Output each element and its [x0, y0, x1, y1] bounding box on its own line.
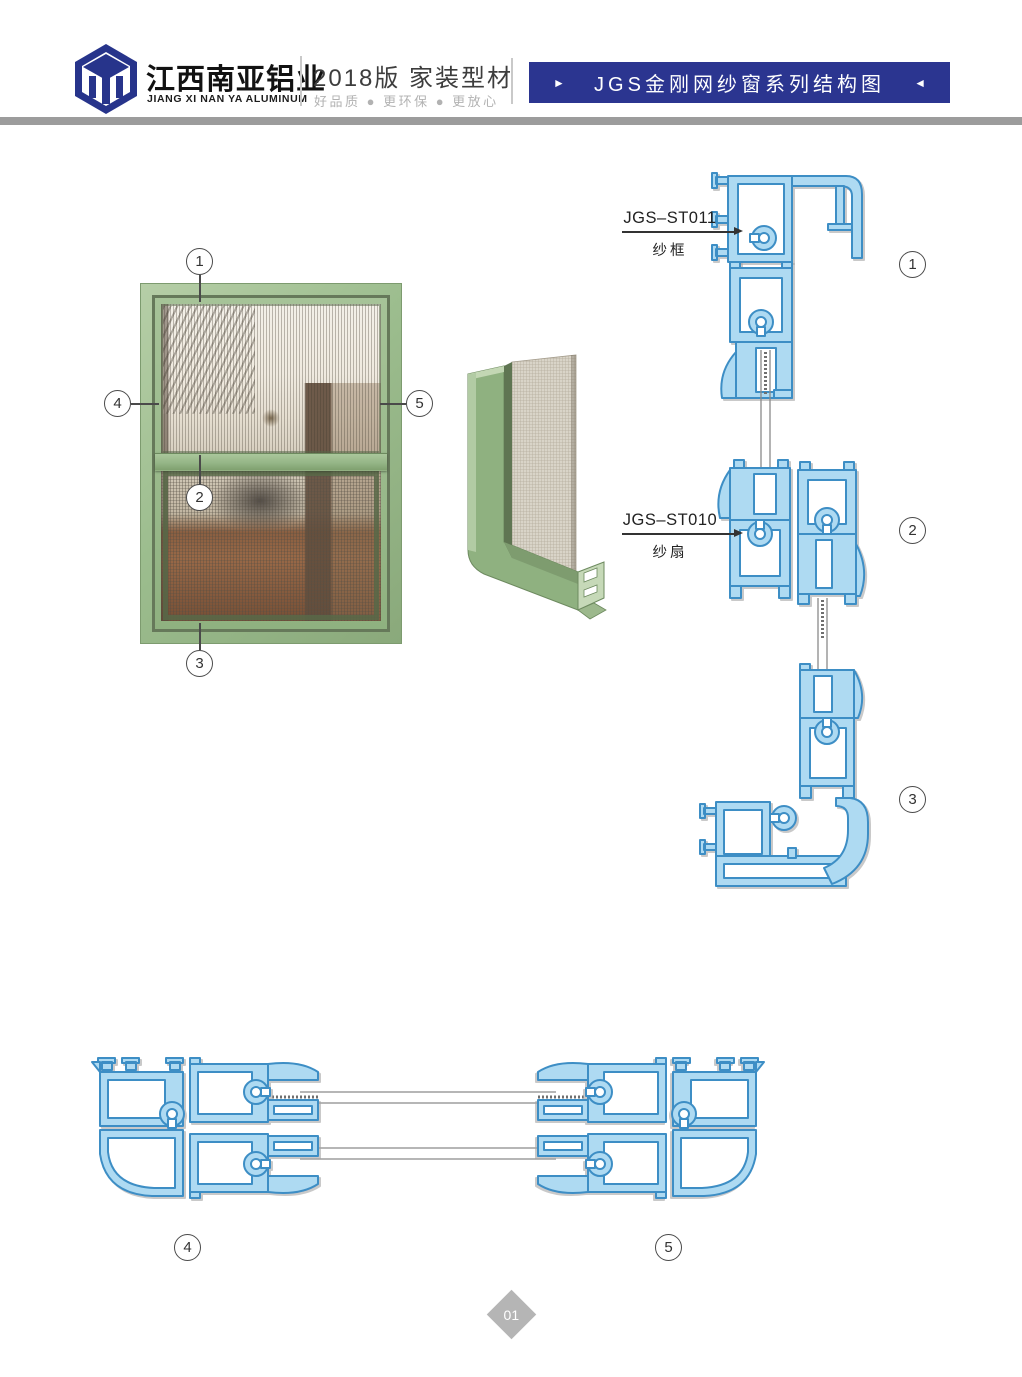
page-number-badge: 01: [487, 1290, 536, 1339]
series-title-banner: ► JGS金刚网纱窗系列结构图 ◄: [529, 62, 950, 103]
profile-name: 纱扇: [612, 537, 728, 562]
header-divider-1: [300, 56, 302, 106]
profile-sill-frame: [700, 798, 868, 886]
callout-4: 4: [104, 390, 131, 417]
label-arrow-st011: [734, 227, 743, 235]
callout-1: 1: [186, 248, 213, 275]
label-jgs-st011-name: 纱框: [612, 235, 728, 260]
callout-2: 2: [186, 484, 213, 511]
screen-window-photo: [140, 283, 402, 644]
page-number: 01: [504, 1306, 520, 1322]
brand-name-cn: 江西南亚铝业: [146, 56, 326, 98]
window-mid-rail: [155, 453, 387, 471]
leader-line-5: [380, 403, 406, 405]
banner-title: JGS金刚网纱窗系列结构图: [594, 68, 885, 97]
section-marker-2: 2: [899, 517, 926, 544]
profile-code: JGS–ST011: [612, 209, 728, 231]
section-marker-5: 5: [655, 1234, 682, 1261]
catalog-page: 江西南亚铝业 JIANG XI NAN YA ALUMINUM 2018版 家装…: [0, 0, 1022, 1377]
profile-head-frame: [712, 173, 862, 262]
leader-line-4: [131, 403, 159, 405]
banner-right-arrow-icon: ◄: [914, 77, 926, 89]
label-line-st010: [622, 533, 735, 535]
profile-name: 纱框: [612, 235, 728, 260]
edition-title: 2018版 家装型材: [313, 58, 513, 93]
banner-left-arrow-icon: ►: [553, 77, 565, 89]
profile-sash-bottom: [800, 664, 862, 798]
label-jgs-st010: JGS–ST010: [612, 511, 728, 533]
upper-sash-mesh: [161, 304, 381, 453]
label-arrow-st010: [734, 529, 743, 537]
profile-meeting-right: [798, 462, 864, 604]
callout-3: 3: [186, 650, 213, 677]
leader-line-3: [199, 623, 201, 650]
profile-meeting-left: [718, 460, 790, 598]
section-marker-4: 4: [174, 1234, 201, 1261]
leader-line-2: [199, 455, 201, 484]
profile-code: JGS–ST010: [612, 511, 728, 533]
label-jgs-st010-name: 纱扇: [612, 537, 728, 562]
leader-line-1: [199, 275, 201, 302]
header-divider-2: [511, 58, 513, 104]
profile-end-face: [578, 562, 604, 610]
section-marker-1: 1: [899, 251, 926, 278]
callout-5: 5: [406, 390, 433, 417]
section-marker-3: 3: [899, 786, 926, 813]
horizontal-section-drawing: [88, 1050, 778, 1208]
brand-name-en: JIANG XI NAN YA ALUMINUM: [147, 93, 308, 105]
header-rule: [0, 117, 1022, 125]
horizontal-right-assembly: [538, 1058, 764, 1198]
profile-sash-top: [721, 262, 792, 398]
company-logo: [72, 42, 140, 116]
horizontal-left-assembly: [92, 1058, 318, 1198]
corner-sample-render: [460, 352, 620, 647]
label-jgs-st011: JGS–ST011: [612, 209, 728, 231]
tagline: 好品质 ● 更环保 ● 更放心: [314, 91, 499, 110]
label-line-st011: [622, 231, 735, 233]
